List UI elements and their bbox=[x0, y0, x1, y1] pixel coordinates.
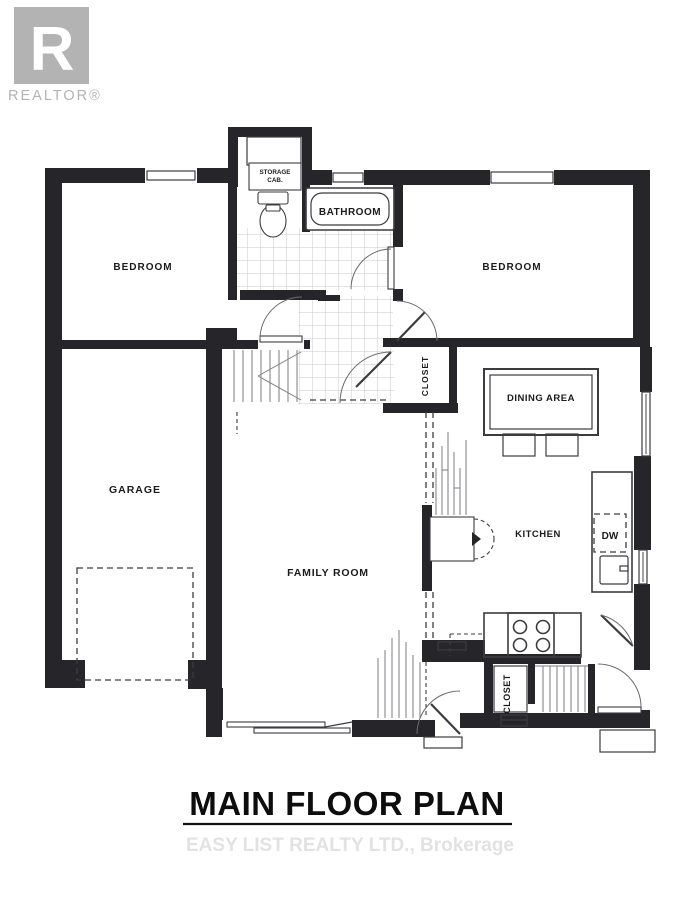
oven-icon bbox=[600, 556, 628, 584]
refrigerator bbox=[430, 517, 494, 561]
label-bathroom: BATHROOM bbox=[319, 207, 381, 218]
door-hall-stairs bbox=[258, 297, 304, 349]
page-title: MAIN FLOOR PLAN bbox=[189, 785, 504, 822]
garage-car-space bbox=[77, 568, 193, 680]
title-block: MAIN FLOOR PLAN EASY LIST REALTY LTD., B… bbox=[183, 785, 514, 856]
pantry-shelves bbox=[436, 432, 466, 515]
dining-chair bbox=[546, 434, 578, 456]
kitchen-divider-dashed bbox=[310, 400, 433, 638]
dining-chair bbox=[503, 434, 535, 456]
floor-plan-page: R REALTOR® bbox=[0, 0, 695, 900]
label-bedroom-right: BEDROOM bbox=[482, 262, 541, 273]
floor-plan-canvas: R REALTOR® bbox=[0, 0, 695, 900]
window-bathroom bbox=[332, 170, 364, 185]
label-kitchen: KITCHEN bbox=[515, 529, 561, 540]
label-storage-line1: STORAGE bbox=[259, 169, 290, 176]
realtor-logo: R REALTOR® bbox=[8, 7, 102, 104]
label-bedroom-left: BEDROOM bbox=[113, 262, 172, 273]
window-kitchen-east bbox=[634, 550, 650, 584]
label-family-room: FAMILY ROOM bbox=[287, 567, 369, 579]
floor-plan: BEDROOM BEDROOM BATHROOM STORAGE CAB. CL… bbox=[45, 127, 655, 752]
label-storage-line2: CAB. bbox=[267, 177, 283, 184]
label-rear-closet: CLOSET bbox=[502, 674, 512, 714]
stairs-rear bbox=[535, 666, 588, 712]
stairs-main bbox=[234, 350, 301, 434]
door-front bbox=[598, 664, 641, 713]
realtor-logo-letter: R bbox=[30, 15, 75, 84]
door-side-entry bbox=[601, 615, 633, 646]
window-bedroom-right bbox=[490, 170, 554, 185]
realtor-logo-text: REALTOR® bbox=[8, 88, 102, 104]
oven-handle bbox=[620, 566, 628, 571]
label-garage: GARAGE bbox=[109, 484, 161, 496]
patio-slider-window bbox=[222, 720, 352, 737]
label-hall-closet: CLOSET bbox=[420, 356, 430, 396]
window-bedroom-left bbox=[145, 168, 197, 183]
window-dining-east bbox=[640, 392, 652, 456]
label-dishwasher: DW bbox=[602, 531, 619, 542]
stairs-basement bbox=[378, 630, 426, 718]
label-dining-area: DINING AREA bbox=[507, 393, 575, 404]
toilet-icon bbox=[258, 192, 288, 237]
dining-table bbox=[484, 369, 598, 456]
brokerage-watermark: EASY LIST REALTY LTD., Brokerage bbox=[186, 835, 514, 856]
door-bedroom-right bbox=[393, 301, 437, 341]
